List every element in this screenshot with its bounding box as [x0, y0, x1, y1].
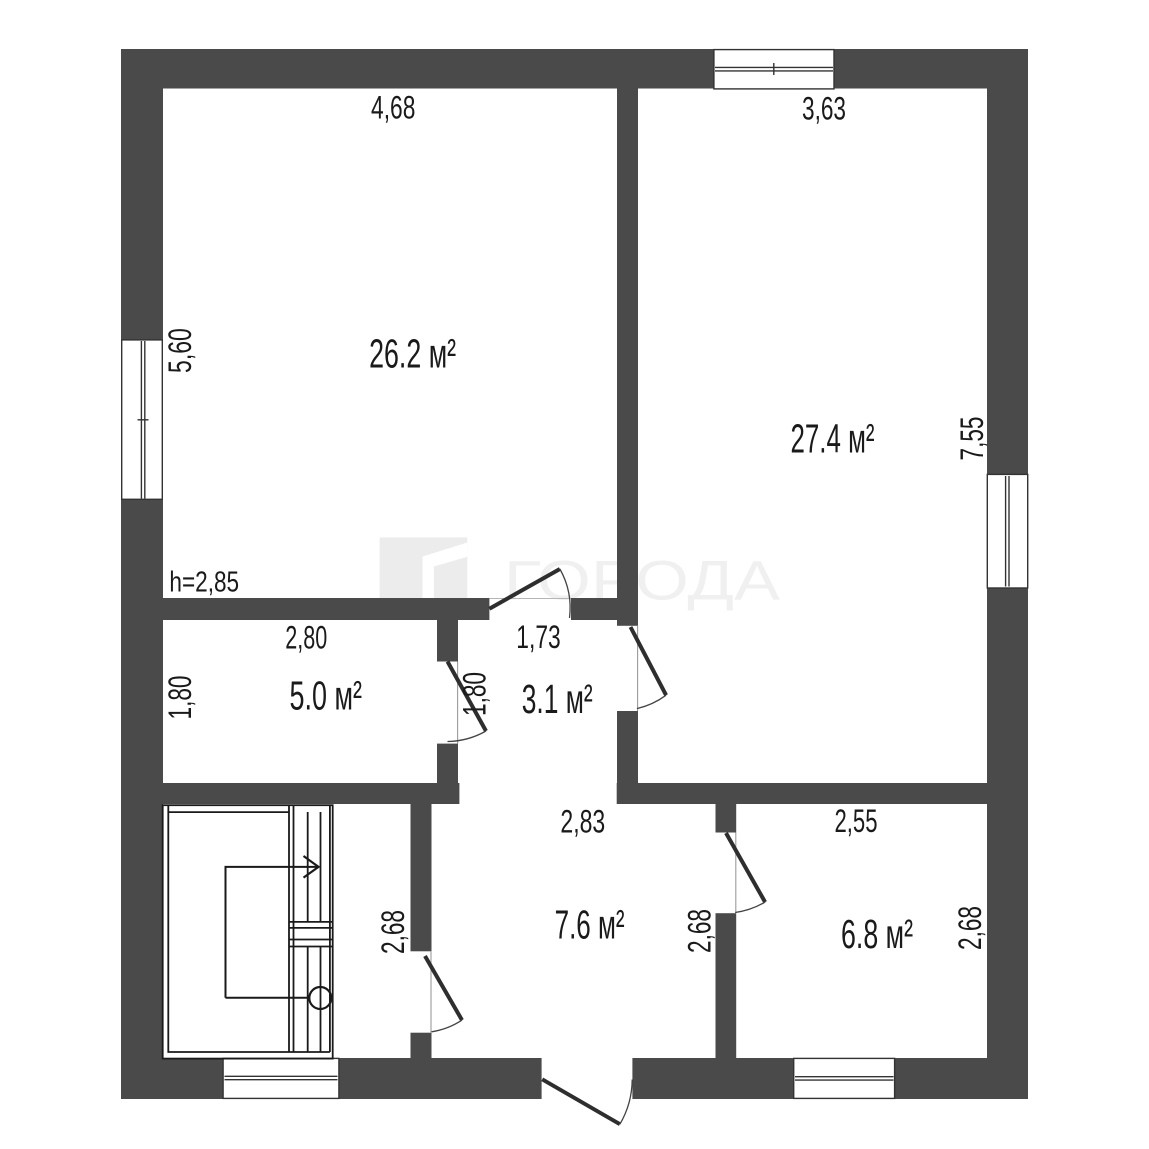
svg-text:26.2 м²: 26.2 м²	[369, 330, 456, 376]
svg-text:4,68: 4,68	[371, 89, 415, 125]
svg-text:1,80: 1,80	[457, 672, 493, 716]
svg-text:3,63: 3,63	[802, 91, 846, 127]
svg-text:2,55: 2,55	[835, 803, 878, 839]
svg-text:2,68: 2,68	[682, 909, 718, 953]
svg-text:h=2,85: h=2,85	[169, 567, 239, 599]
svg-text:ГОРОДА: ГОРОДА	[504, 548, 781, 611]
svg-text:1,73: 1,73	[516, 619, 560, 655]
svg-text:2,68: 2,68	[952, 906, 988, 950]
svg-text:6.8 м²: 6.8 м²	[841, 911, 913, 957]
svg-text:3.1 м²: 3.1 м²	[522, 676, 593, 722]
svg-text:2,80: 2,80	[285, 620, 327, 656]
svg-text:1,80: 1,80	[162, 676, 198, 720]
svg-text:27.4 м²: 27.4 м²	[791, 415, 875, 461]
svg-text:5,60: 5,60	[162, 328, 198, 373]
svg-text:2,68: 2,68	[375, 910, 411, 954]
svg-text:7.6 м²: 7.6 м²	[555, 902, 625, 948]
svg-text:7,55: 7,55	[954, 417, 990, 461]
svg-text:2,83: 2,83	[560, 803, 605, 839]
svg-text:5.0 м²: 5.0 м²	[290, 673, 363, 719]
